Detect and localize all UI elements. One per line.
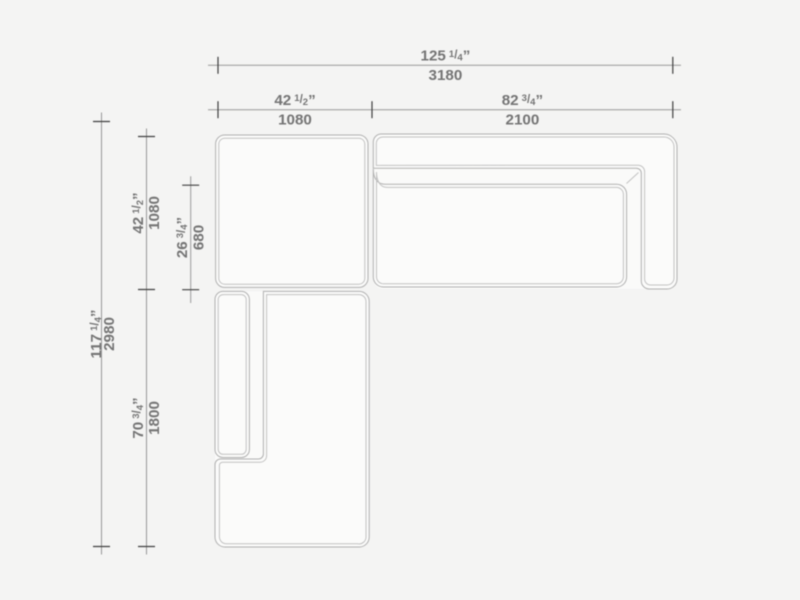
svg-text:70 3/4”: 70 3/4”	[130, 397, 147, 438]
svg-text:1080: 1080	[146, 196, 163, 230]
svg-text:82 3/4”: 82 3/4”	[502, 92, 543, 109]
svg-text:26 3/4”: 26 3/4”	[174, 217, 191, 258]
svg-text:680: 680	[190, 225, 207, 250]
svg-text:42 1/2”: 42 1/2”	[130, 192, 147, 233]
svg-text:2980: 2980	[101, 317, 118, 351]
svg-text:3180: 3180	[429, 67, 463, 84]
svg-text:1800: 1800	[146, 401, 163, 435]
svg-text:2100: 2100	[506, 111, 540, 128]
svg-text:42 1/2”: 42 1/2”	[274, 92, 315, 109]
svg-text:1080: 1080	[278, 111, 312, 128]
svg-text:125 1/4”: 125 1/4”	[421, 48, 471, 65]
